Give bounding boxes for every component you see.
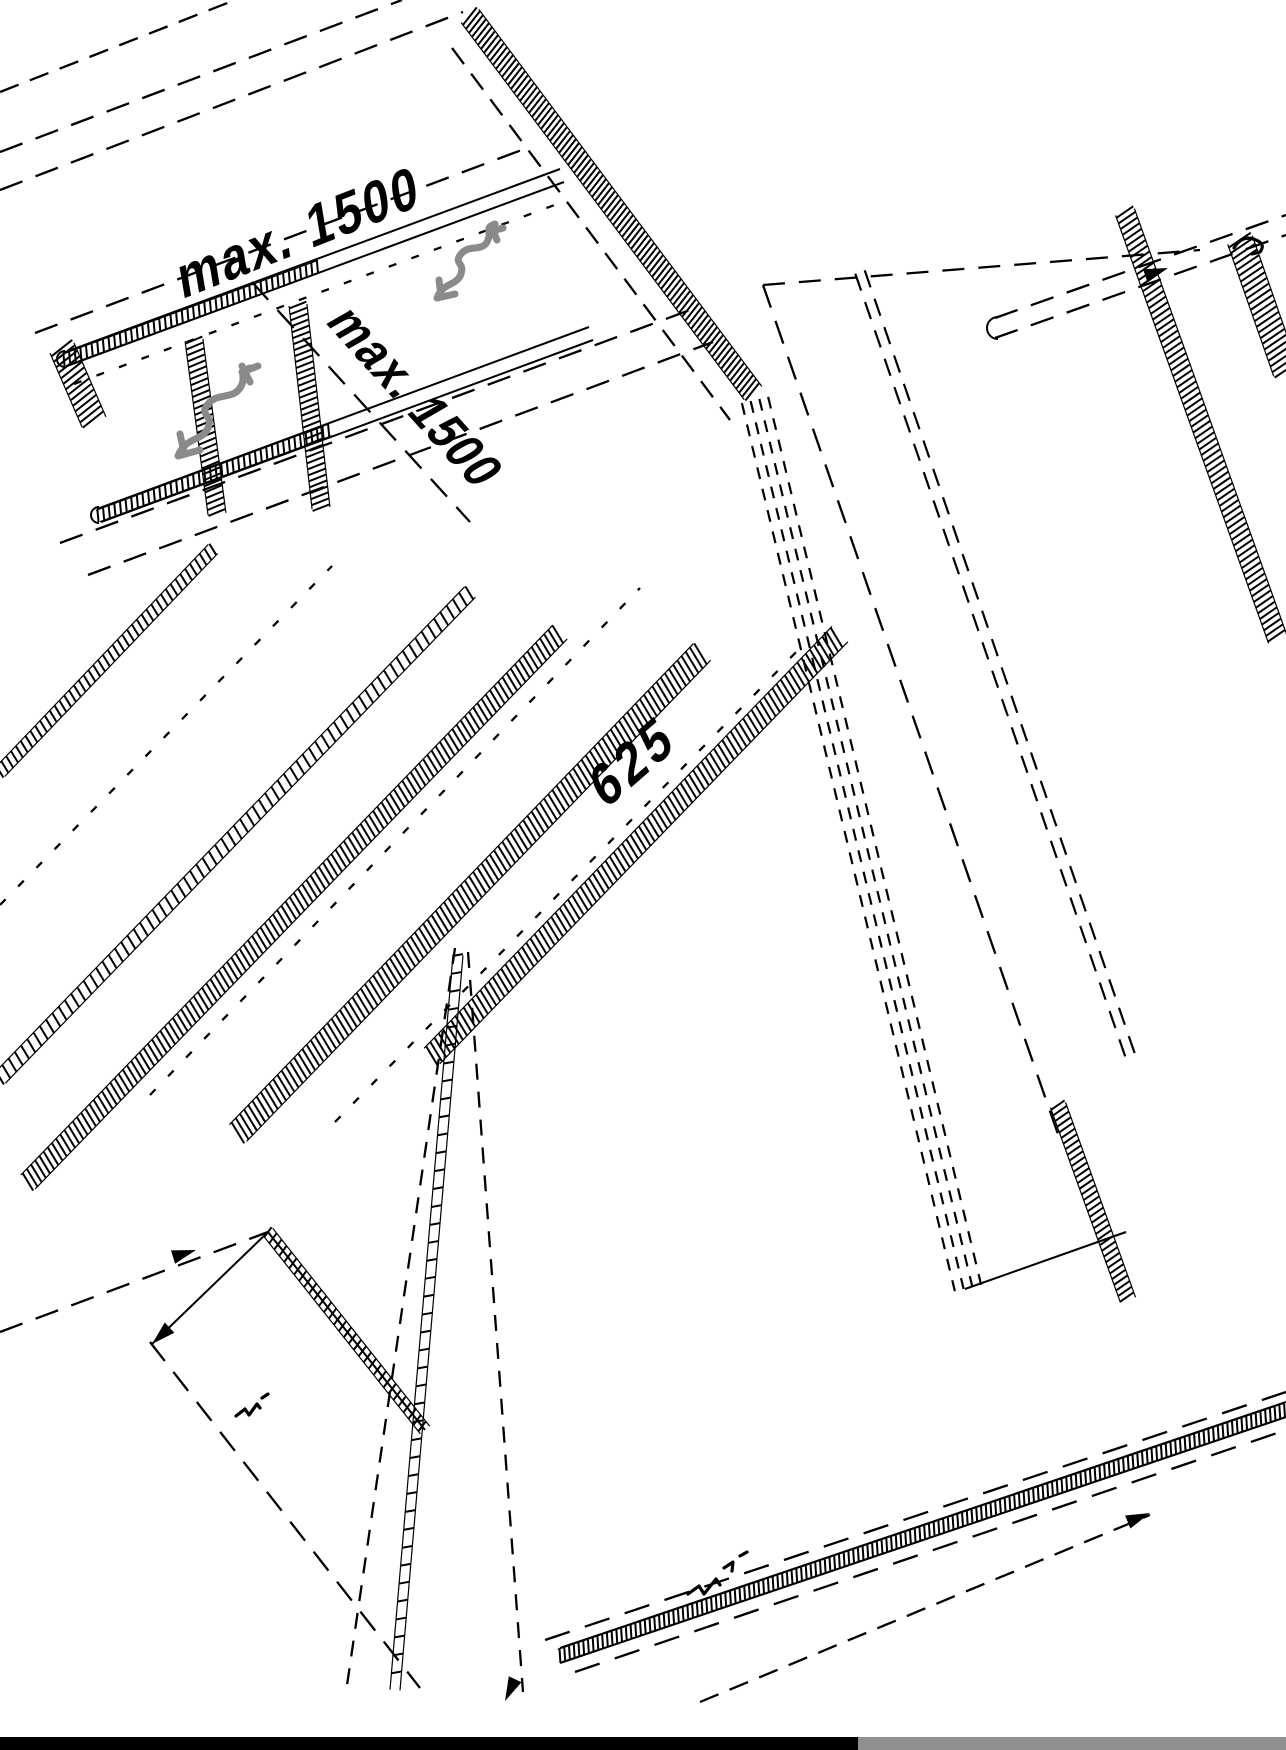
hatch-tick: [277, 275, 278, 287]
hatch-tick: [1104, 1464, 1105, 1478]
figure-canvas: max. 1500 max. 1500 625: [0, 0, 1286, 1750]
hatch-tick: [1090, 1469, 1091, 1483]
hatch-tick: [736, 371, 750, 388]
hatch-tick: [1057, 1481, 1058, 1495]
hatch-tick: [569, 773, 581, 794]
small-reference-mark: [236, 1394, 268, 1416]
hatch-tick: [228, 832, 236, 845]
hatch-tick: [658, 267, 672, 284]
hatch-tick: [1000, 1500, 1001, 1514]
hatch-tick: [365, 690, 373, 703]
hatch-tick: [290, 767, 298, 780]
hatch-tick: [702, 1601, 703, 1615]
hatch-tick: [272, 278, 273, 290]
hatch-tick: [289, 271, 290, 283]
hatch-tick: [74, 685, 81, 696]
hatch-tick: [292, 320, 309, 327]
dashed-line: [751, 401, 964, 1289]
hatch-tick: [613, 207, 627, 224]
gray-scribble-annotation: [437, 224, 503, 298]
hatch-tick: [92, 344, 93, 356]
hatch-tick: [745, 383, 759, 400]
hatch-tick: [877, 1542, 878, 1556]
hatch-tick: [369, 980, 381, 1001]
hatch-tick: [1062, 1479, 1063, 1493]
hatch-tick: [421, 1331, 431, 1333]
hatch-tick: [419, 1349, 429, 1351]
hatch-tick: [2, 1065, 10, 1078]
hatch-tick: [184, 877, 192, 890]
hatch-tick: [321, 735, 329, 748]
hatch-tick: [529, 95, 543, 112]
hatch-tick: [1156, 1447, 1157, 1461]
hatch-tick: [872, 1543, 873, 1557]
hatch-tick: [796, 1569, 797, 1583]
hatch-tick: [598, 187, 612, 204]
hatch-tick: [328, 425, 329, 437]
hatch-tick: [159, 903, 167, 916]
hatch-tick: [190, 366, 207, 373]
hatch-tick: [357, 993, 369, 1014]
hatch-tick: [73, 389, 93, 405]
hatch-tick: [444, 1062, 454, 1064]
hatch-tick: [754, 1583, 755, 1597]
hatch-tick: [649, 255, 663, 272]
dashed-line: [865, 270, 1135, 1053]
hatch-tick: [532, 99, 546, 116]
hatch-tick: [396, 1618, 406, 1620]
hatch-tick: [664, 275, 678, 292]
hatch-tick: [1137, 1453, 1138, 1467]
solid-line: [268, 1232, 425, 1430]
hatch-tick: [544, 115, 558, 132]
hatch-tick: [635, 1623, 636, 1637]
hatch-tick: [290, 302, 307, 309]
hatch-tick: [165, 317, 166, 329]
hatch-tick: [592, 179, 606, 196]
hatch-tick: [664, 1614, 665, 1628]
dashed-line: [742, 403, 955, 1291]
hatch-tick: [148, 491, 149, 503]
hatch-tick: [557, 786, 569, 807]
hatch-tick: [294, 269, 295, 281]
hatch-tick: [553, 127, 567, 144]
hatch-tick: [311, 263, 312, 275]
hatch-tick: [749, 1585, 750, 1599]
hatch-tick: [244, 1110, 256, 1131]
hatch-tick: [607, 199, 621, 216]
hatch-tick: [1241, 1418, 1242, 1432]
hatch-tick: [493, 47, 507, 64]
hatch-tick: [439, 1116, 449, 1118]
hatch-tick: [30, 731, 37, 742]
hatch-tick: [300, 267, 301, 279]
hatch-tick: [523, 87, 537, 104]
hatch-tick: [669, 669, 681, 690]
hatch-tick: [195, 559, 202, 570]
hatch-tick: [475, 23, 489, 40]
hatch-tick: [193, 475, 194, 487]
hatch-tick: [209, 852, 217, 865]
hatch-tick: [487, 39, 501, 56]
hatch-tick: [401, 1564, 411, 1566]
hatch-tick: [976, 1508, 977, 1522]
hatch-tick: [142, 493, 143, 505]
hatch-tick: [1080, 1473, 1081, 1487]
hatch-tick: [35, 726, 42, 737]
hatch-tick: [450, 990, 460, 992]
hatch-tick: [416, 1385, 426, 1387]
hatch-tick: [114, 504, 115, 516]
hatch-tick: [424, 1295, 434, 1297]
hatch-tick: [180, 574, 187, 585]
hatch-tick: [571, 151, 585, 168]
hatch-tick: [697, 1602, 698, 1616]
hatch-tick: [232, 1123, 244, 1144]
hatch-tick: [303, 755, 311, 768]
hatch-tick: [430, 1223, 440, 1225]
hatch-tick: [435, 1169, 445, 1171]
hatch-tick: [240, 1114, 252, 1135]
hatch-tick: [657, 682, 669, 703]
hatch-tick: [602, 1635, 603, 1649]
hatch-tick: [296, 761, 304, 774]
hatch-tick: [291, 314, 308, 321]
hatch-tick: [1095, 1468, 1096, 1482]
hatch-tick: [481, 31, 495, 48]
hatch-tick: [125, 331, 126, 343]
hatch-tick: [730, 363, 744, 380]
hatch-tick: [117, 640, 124, 651]
hatch-tick: [232, 460, 233, 472]
hatch-tick: [323, 1028, 335, 1049]
hatch-tick: [691, 311, 705, 328]
hatch-tick: [1170, 1442, 1171, 1456]
hatch-tick: [88, 670, 95, 681]
hatch-tick: [221, 839, 229, 852]
hatch-tick: [438, 1133, 448, 1135]
hatch-tick: [142, 615, 149, 626]
hatch-tick: [201, 456, 218, 463]
dashed-line: [0, 0, 402, 152]
hatch-tick: [763, 1580, 764, 1594]
hatch-tick: [398, 950, 410, 971]
hatch-tick: [478, 868, 490, 889]
hatch-tick: [423, 924, 435, 945]
hatch-tick: [1245, 278, 1267, 293]
hatch-tick: [127, 630, 134, 641]
dimension-label-625-center: 625: [580, 701, 685, 821]
hatch-band: [0, 544, 218, 778]
hatch-tick: [0, 766, 3, 777]
hatch-tick: [583, 1641, 584, 1655]
hatch-tick: [422, 632, 430, 645]
hatch-tick: [234, 826, 242, 839]
hatch-tick: [1243, 272, 1265, 287]
hatch-tick: [716, 1596, 717, 1610]
hatch-tick: [1118, 1460, 1119, 1474]
hatch-tick: [919, 1527, 920, 1541]
hatch-tick: [1218, 1426, 1219, 1440]
hatch-tick: [768, 1578, 769, 1592]
hatch-tick: [938, 1521, 939, 1535]
hatch-tick: [170, 315, 171, 327]
hatch-band-border: [1116, 215, 1269, 643]
hatch-tick: [1109, 1463, 1110, 1477]
hatch-tick: [1, 761, 8, 772]
hatch-tick: [79, 680, 86, 691]
hatch-tick: [148, 323, 149, 335]
hatch-tick: [801, 1567, 802, 1581]
hatch-tick: [972, 1509, 973, 1523]
hatch-tick: [103, 962, 111, 975]
hatch-tick: [436, 911, 448, 932]
hatch-tick: [442, 1080, 452, 1082]
hatch-tick: [697, 319, 711, 336]
hatch-tick: [486, 859, 498, 880]
hatch-tick: [293, 332, 310, 339]
hatch-tick: [742, 379, 756, 396]
hatch-tick: [990, 1503, 991, 1517]
hatch-tick: [283, 441, 284, 453]
hatch-tick: [300, 397, 317, 404]
hatch-tick: [1257, 312, 1279, 327]
hatch-tick: [901, 1533, 902, 1547]
hatch-tick: [541, 111, 555, 128]
hatch-tick: [1263, 329, 1285, 344]
hatch-tick: [272, 445, 273, 457]
hatch-tick: [1204, 1431, 1205, 1445]
hatch-tick: [415, 933, 427, 954]
hatch-tick: [80, 406, 100, 422]
hatch-tick: [312, 498, 329, 505]
hatch-tick: [6, 756, 13, 767]
hatch-tick: [733, 367, 747, 384]
hatch-tick: [1033, 1489, 1034, 1503]
arrowhead-icon: [1125, 1507, 1152, 1529]
hatch-tick: [221, 296, 222, 308]
hatch-tick: [186, 342, 203, 349]
hatch-tick: [278, 780, 286, 793]
hatch-tick: [673, 287, 687, 304]
hatch-tick: [317, 261, 318, 273]
hatch-tick: [68, 378, 88, 394]
hatch-tick: [154, 321, 155, 333]
hatch-tick: [277, 443, 278, 455]
hatch-tick: [308, 463, 325, 470]
hatch-tick: [628, 227, 642, 244]
hatch-tick: [55, 706, 62, 717]
hatch-tick: [777, 1575, 778, 1589]
hatch-tick: [83, 412, 103, 428]
hatch-tick: [645, 1620, 646, 1634]
hatch-tick: [98, 660, 105, 671]
hatch-tick: [232, 292, 233, 304]
hatch-tick: [238, 290, 239, 302]
hatch-tick: [915, 1529, 916, 1543]
hatch-tick: [1194, 1434, 1195, 1448]
hatch-tick: [688, 307, 702, 324]
hatch-tick: [725, 1593, 726, 1607]
hatch-tick: [452, 972, 462, 974]
hatch-tick: [601, 191, 615, 208]
hatch-tick: [1251, 1415, 1252, 1429]
hatch-tick: [694, 643, 706, 664]
hatch-tick: [286, 1067, 298, 1088]
hatch-tick: [298, 373, 315, 380]
hatch-tick: [574, 155, 588, 172]
hatch-tick: [1180, 1439, 1181, 1453]
hatch-tick: [15, 1052, 23, 1065]
hatch-tick: [165, 485, 166, 497]
hatch-tick: [298, 379, 315, 386]
hatch-tick: [1147, 1450, 1148, 1464]
hatch-tick: [306, 433, 307, 445]
hatch-tick: [120, 333, 121, 345]
hatch-tick: [59, 1007, 67, 1020]
isometric-technical-drawing: max. 1500 max. 1500 625: [0, 0, 1286, 1750]
hatch-tick: [240, 819, 248, 832]
hatch-tick: [21, 741, 28, 752]
hatch-tick: [309, 748, 317, 761]
hatch-tick: [63, 354, 64, 366]
hatch-tick: [159, 487, 160, 499]
hatch-tick: [1024, 1492, 1025, 1506]
hatch-tick: [432, 915, 444, 936]
hatch-tick: [365, 985, 377, 1006]
hatch-tick: [69, 691, 76, 702]
hatch-tick: [132, 625, 139, 636]
hatch-tick: [307, 457, 324, 464]
hatch-tick: [108, 650, 115, 661]
hatch-tick: [690, 648, 702, 669]
hatch-tick: [739, 375, 753, 392]
hatch-tick: [686, 652, 698, 673]
hatch-tick: [282, 1071, 294, 1092]
hatch-tick: [508, 67, 522, 84]
hatch-tick: [137, 495, 138, 507]
hatch-tick: [694, 315, 708, 332]
hatch-tick: [373, 976, 385, 997]
hatch-tick: [208, 509, 225, 516]
hatch-tick: [535, 103, 549, 120]
hatch-tick: [45, 716, 52, 727]
hatch-tick: [1261, 323, 1283, 338]
hatch-tick: [353, 997, 365, 1018]
hatch-tick: [440, 612, 448, 625]
hatch-tick: [40, 1026, 48, 1039]
hatch-tick: [84, 675, 91, 686]
hatch-tick: [844, 1553, 845, 1567]
hatch-tick: [711, 1598, 712, 1612]
hatch-tick: [650, 1619, 651, 1633]
hatch-tick: [93, 665, 100, 676]
hatch-tick: [465, 586, 473, 599]
hatch-band: [1050, 1100, 1135, 1302]
hatch-tick: [715, 343, 729, 360]
hatch-tick: [248, 1105, 260, 1126]
hatch-tick: [27, 1039, 35, 1052]
hatch-tick: [1259, 318, 1281, 333]
hatch-tick: [244, 456, 245, 468]
hatch-tick: [461, 885, 473, 906]
hatch-tick: [482, 864, 494, 885]
hatch-tick: [306, 265, 307, 277]
hatch-tick: [302, 415, 319, 422]
hatch-tick: [863, 1546, 864, 1560]
hatch-tick: [758, 1582, 759, 1596]
hatch-tick: [386, 963, 398, 984]
hatch-tick: [428, 920, 440, 941]
hatch-band: [21, 625, 567, 1191]
hatch-tick: [403, 651, 411, 664]
hatch-tick: [64, 696, 71, 707]
hatch-tick: [298, 1054, 310, 1075]
hatch-tick: [1189, 1436, 1190, 1450]
hatch-tick: [1247, 284, 1269, 299]
hatch-tick: [668, 1612, 669, 1626]
hatch-tick: [216, 466, 217, 478]
hatch-tick: [394, 954, 406, 975]
hatch-tick: [561, 782, 573, 803]
hatch-tick: [265, 1088, 277, 1109]
hatch-tick: [517, 79, 531, 96]
dimension-label-max-1500-top: max. 1500: [173, 152, 425, 312]
hatch-tick: [395, 1636, 405, 1638]
hatch-tick: [564, 1647, 565, 1661]
hatch-tick: [153, 910, 161, 923]
hatch-tick: [782, 1574, 783, 1588]
hatch-tick: [1213, 1428, 1214, 1442]
hatch-tick: [71, 994, 79, 1007]
hatch-tick: [735, 1590, 736, 1604]
solid-line: [560, 1417, 1286, 1663]
hatch-tick: [187, 477, 188, 489]
hatch-tick: [303, 1049, 315, 1070]
hatch-tick: [236, 1118, 248, 1139]
hatch-tick: [96, 968, 104, 981]
hatch-tick: [1052, 1482, 1053, 1496]
hatch-tick: [407, 941, 419, 962]
hatch-tick: [199, 472, 200, 484]
hatch-tick: [384, 670, 392, 683]
hatch-tick: [583, 167, 597, 184]
hatch-tick: [905, 1532, 906, 1546]
hatch-tick: [97, 510, 98, 522]
hatch-tick: [507, 838, 519, 859]
hatch-tick: [820, 1561, 821, 1575]
hatch-tick: [310, 481, 327, 488]
hatch-tick: [0, 1072, 4, 1085]
hatch-tick: [128, 936, 136, 949]
hatch-tick: [428, 625, 436, 638]
hatch-tick: [21, 1046, 29, 1059]
hatch-tick: [586, 171, 600, 188]
hatch-tick: [253, 1101, 265, 1122]
hatch-tick: [593, 1638, 594, 1652]
hatch-tick: [66, 373, 86, 389]
hatch-tick: [265, 793, 273, 806]
hatch-tick: [301, 403, 318, 410]
hatch-tick: [682, 299, 696, 316]
multi-dashed-edge: [742, 397, 981, 1291]
hatch-tick: [494, 851, 506, 872]
hatch-tick: [340, 1010, 352, 1031]
hatch-tick: [244, 288, 245, 300]
hatch-tick: [249, 286, 250, 298]
hatch-tick: [142, 325, 143, 337]
hatch-tick: [196, 865, 204, 878]
